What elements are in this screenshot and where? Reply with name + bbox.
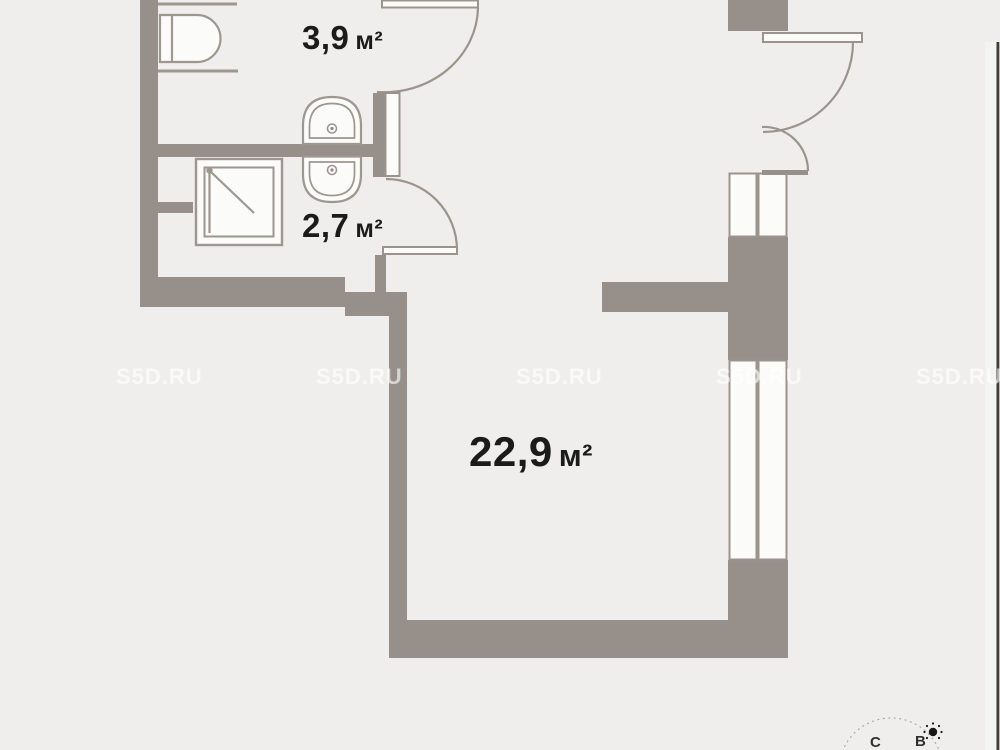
door-bathroom-leaf (382, 1, 478, 8)
wall-living-bottom (389, 620, 729, 658)
door-hallway-leaf (383, 247, 457, 254)
area-value: 3,9 (302, 21, 349, 54)
door-leaf-closed (386, 93, 400, 176)
watermark: S5D.RU (716, 364, 803, 390)
wall-right-bottom (728, 560, 788, 658)
watermark: S5D.RU (916, 364, 1000, 390)
area-label-hallway: 2,7 м² (302, 209, 383, 242)
wall-bath-bottom (140, 277, 345, 307)
door-hallway-arc (386, 179, 457, 250)
compass-dashed-circle (839, 718, 943, 750)
compass-east-label: В (915, 734, 926, 749)
shower-symbol (196, 159, 282, 245)
toilet-bowl (160, 15, 221, 62)
compass-north-label: С (870, 735, 881, 750)
wall-right-top (728, 0, 788, 31)
watermark: S5D.RU (516, 364, 603, 390)
sun-icon (923, 722, 942, 739)
area-label-living-room: 22,9 м² (469, 431, 593, 473)
watermark: S5D.RU (116, 364, 203, 390)
compass (828, 692, 1000, 750)
door-bathroom-arc (377, 8, 478, 92)
area-value: 2,7 (302, 209, 349, 242)
floor-plan-screenshot: 3,9 м² 2,7 м² 22,9 м² S5D.RU S5D.RU S5D.… (0, 0, 1000, 750)
window-top-pane-left (730, 174, 757, 237)
sink-symbol-top (303, 97, 361, 144)
sink-symbol-bottom (303, 157, 361, 203)
right-edge-line (997, 42, 1000, 750)
watermark: S5D.RU (316, 364, 403, 390)
area-label-bathroom: 3,9 м² (302, 21, 383, 54)
area-unit: м² (355, 29, 383, 54)
door-balcony-arc-large (763, 42, 853, 132)
window-bottom-pane-right (759, 361, 787, 560)
wall-bath-divider (140, 144, 378, 157)
door-balcony (762, 33, 862, 175)
sink-bottom-faucet-dot (330, 168, 333, 171)
wall-door-stub (373, 93, 386, 177)
door-balcony-arc-small (762, 127, 808, 171)
window-top (730, 174, 787, 237)
wall-right-stub (602, 282, 728, 312)
window-bottom-pane-left (730, 361, 757, 560)
sink-top-faucet-dot (330, 127, 333, 130)
door-bathroom (377, 1, 478, 177)
wall-living-left (389, 300, 407, 658)
wall-shower-stub (155, 202, 193, 213)
door-balcony-leaf-small (762, 170, 808, 175)
wall-right-mid (728, 237, 788, 360)
area-value: 22,9 (469, 431, 553, 473)
toilet-symbol (158, 4, 238, 71)
area-unit: м² (355, 217, 383, 242)
door-hallway (383, 179, 457, 254)
image-right-edge (985, 42, 999, 750)
right-edge-light-strip (985, 42, 996, 750)
door-balcony-leaf-large (763, 33, 862, 42)
walls (140, 0, 788, 658)
window-top-pane-right (759, 174, 787, 237)
window-bottom (730, 361, 787, 560)
area-unit: м² (559, 440, 593, 471)
